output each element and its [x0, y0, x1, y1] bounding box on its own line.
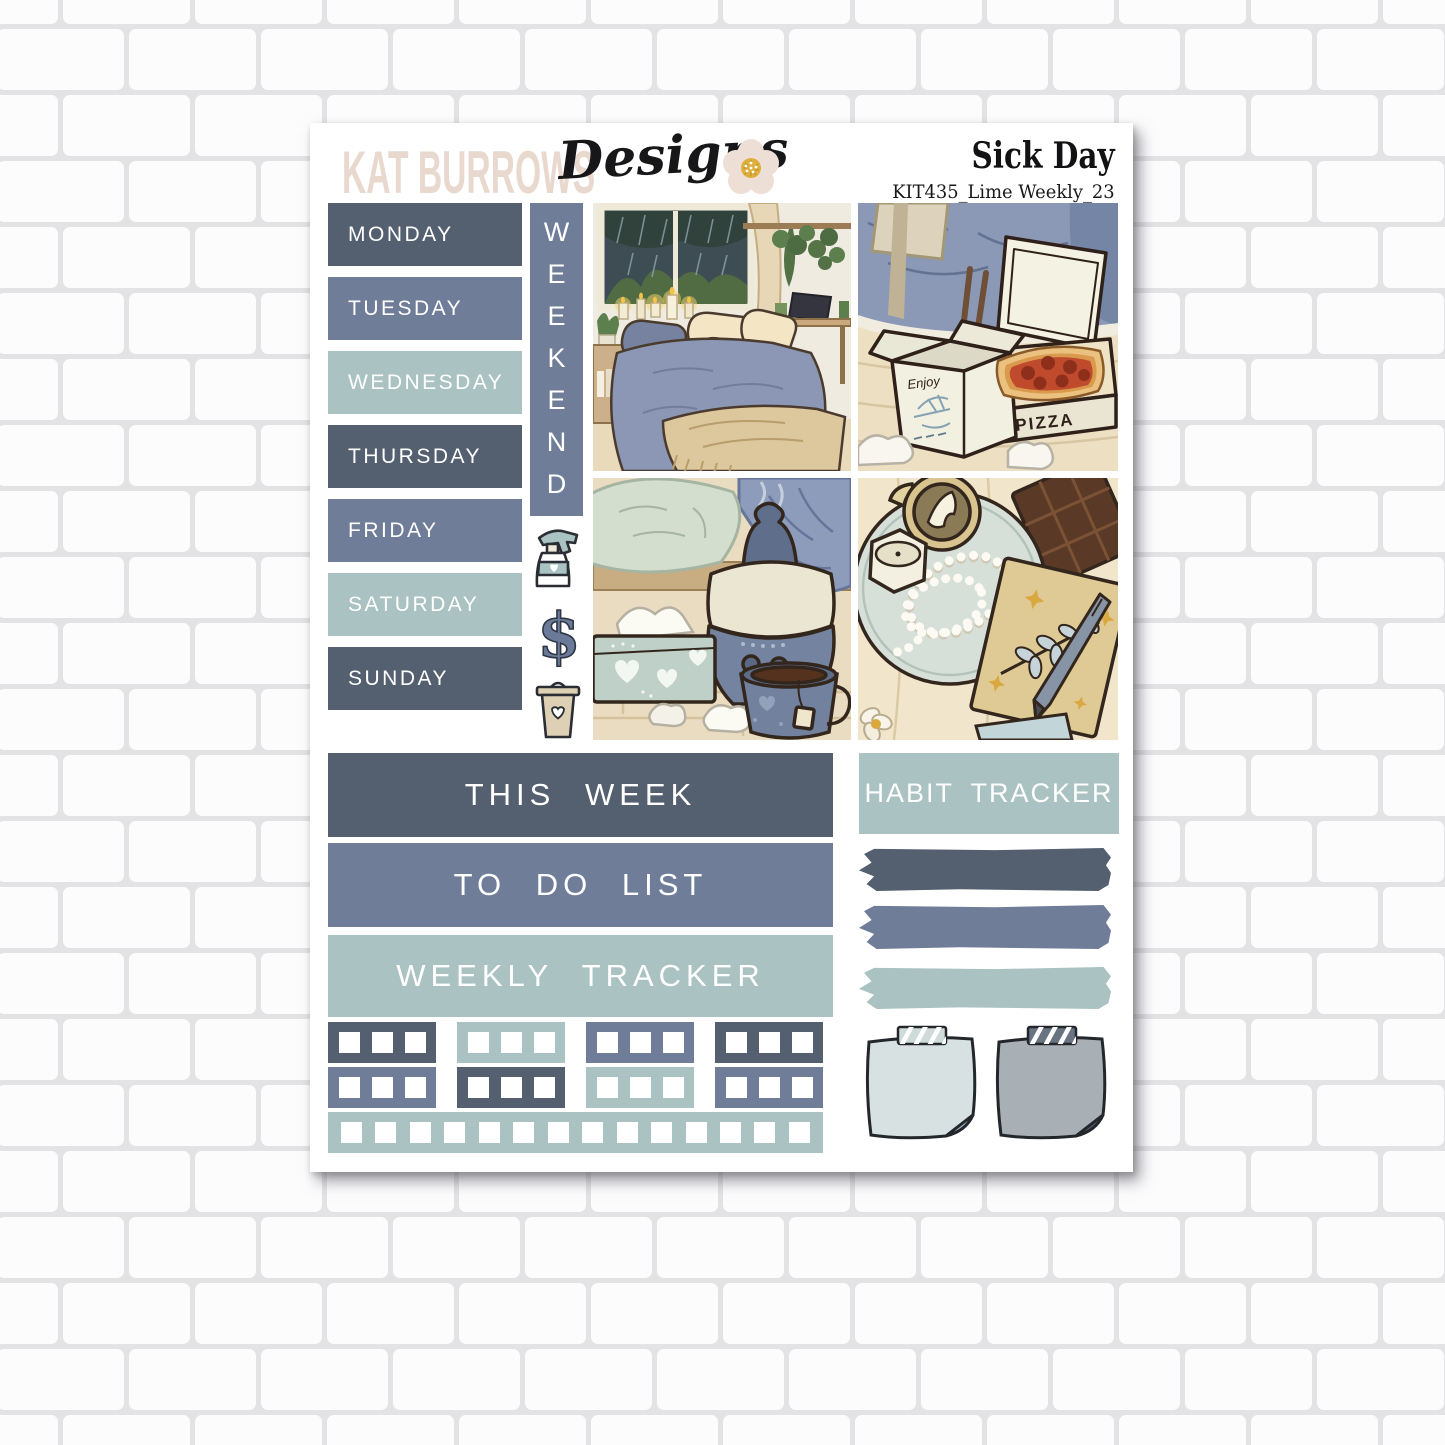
checkbox-strip: [328, 1112, 823, 1153]
checkbox-cell: [513, 1122, 534, 1143]
wall-tile: [327, 0, 454, 24]
day-sticker-saturday: SATURDAY: [328, 573, 522, 636]
wall-tile: [0, 1217, 124, 1278]
wall-tile: [195, 491, 322, 552]
wall-tile: [195, 1151, 322, 1212]
wall-tile: [0, 293, 124, 354]
checkbox-cell: [663, 1077, 684, 1098]
wall-tile: [525, 29, 652, 90]
wall-tile: [1119, 95, 1246, 156]
wall-tile: [1317, 557, 1444, 618]
wall-tile: [393, 29, 520, 90]
wall-tile: [195, 623, 322, 684]
wall-tile: [129, 293, 256, 354]
checkbox-row-2: [328, 1067, 823, 1108]
wall-tile: [789, 1217, 916, 1278]
wall-tile: [261, 29, 388, 90]
wall-tile: [129, 953, 256, 1014]
checkbox-cell: [617, 1122, 638, 1143]
wall-tile: [63, 887, 190, 948]
wall-tile: [0, 29, 124, 90]
wall-tile: [855, 0, 982, 24]
wall-tile: [195, 1415, 322, 1445]
wall-tile: [0, 755, 58, 816]
wall-tile: [129, 1217, 256, 1278]
wall-tile: [0, 1085, 124, 1146]
wall-tile: [0, 227, 58, 288]
checkbox-block: [586, 1022, 694, 1063]
tile-row: [0, 1415, 1445, 1445]
kit-title-block: Sick Day KIT435_Lime Weekly_23: [878, 135, 1115, 203]
wall-tile: [1383, 1151, 1445, 1212]
wall-tile: [0, 953, 124, 1014]
wall-tile: [63, 1283, 190, 1344]
wall-tile: [195, 359, 322, 420]
checkbox-cell: [339, 1032, 360, 1053]
wall-tile: [1317, 689, 1444, 750]
tile-row: [0, 1217, 1445, 1278]
wall-tile: [129, 689, 256, 750]
wall-tile: [195, 1019, 322, 1080]
checkbox-block: [586, 1067, 694, 1108]
wall-tile: [1119, 755, 1246, 816]
wall-tile: [1251, 1019, 1378, 1080]
brush-stroke-medium: [859, 905, 1111, 949]
wall-tile: [921, 1349, 1048, 1410]
wall-tile: [261, 1217, 388, 1278]
wall-tile: [1185, 29, 1312, 90]
wall-tile: [63, 227, 190, 288]
wall-tile: [1185, 1085, 1312, 1146]
wall-tile: [1119, 1415, 1246, 1445]
wall-tile: [63, 623, 190, 684]
wall-tile: [459, 1415, 586, 1445]
wall-tile: [1119, 1283, 1246, 1344]
checkbox-block: [457, 1022, 565, 1063]
checkbox-cell: [686, 1122, 707, 1143]
wall-tile: [129, 1349, 256, 1410]
illustration-humidifier: [593, 478, 851, 740]
brush-stroke-light: [859, 967, 1111, 1009]
checkbox-cell: [468, 1077, 489, 1098]
wall-tile: [195, 227, 322, 288]
checkbox-cell: [597, 1077, 618, 1098]
wall-tile: [723, 1283, 850, 1344]
checkbox-block: [715, 1067, 823, 1108]
day-sticker-friday: FRIDAY: [328, 499, 522, 562]
wall-tile: [129, 821, 256, 882]
wall-tile: [459, 0, 586, 24]
wall-tile: [1251, 1415, 1378, 1445]
wall-tile: [1317, 29, 1444, 90]
wall-tile: [195, 95, 322, 156]
wall-tile: [195, 0, 322, 24]
checkbox-cell: [534, 1077, 555, 1098]
dollar-sign-icon: $: [532, 601, 585, 676]
day-sticker-thursday: THURSDAY: [328, 425, 522, 488]
wall-tile: [1317, 425, 1444, 486]
checkbox-cell: [792, 1032, 813, 1053]
wall-tile: [195, 1283, 322, 1344]
wall-tile: [1119, 227, 1246, 288]
wall-tile: [1185, 425, 1312, 486]
spray-bottle-icon: [530, 526, 583, 595]
wall-tile: [1317, 953, 1444, 1014]
flower-icon: [722, 139, 780, 202]
wall-tile: [63, 0, 190, 24]
wall-tile: [657, 29, 784, 90]
checkbox-cell: [468, 1032, 489, 1053]
checkbox-cell: [410, 1122, 431, 1143]
wall-tile: [1053, 1217, 1180, 1278]
checkbox-block: [715, 1022, 823, 1063]
wall-tile: [1317, 1217, 1444, 1278]
wall-tile: [525, 1217, 652, 1278]
to-do-list-bar: TO DO LIST: [328, 843, 833, 927]
checkbox-cell: [372, 1032, 393, 1053]
wall-tile: [1383, 623, 1445, 684]
wall-tile: [0, 887, 58, 948]
wall-tile: [1119, 887, 1246, 948]
wall-tile: [1317, 821, 1444, 882]
sticky-note-gray: [990, 1025, 1112, 1145]
wall-tile: [0, 1019, 58, 1080]
wall-tile: [0, 689, 124, 750]
checkbox-cell: [597, 1032, 618, 1053]
wall-tile: [1119, 1019, 1246, 1080]
kit-title: Sick Day: [921, 135, 1115, 177]
wall-tile: [1383, 359, 1445, 420]
checkbox-cell: [405, 1032, 426, 1053]
illustration-flatlay: [858, 478, 1118, 740]
checkbox-cell: [651, 1122, 672, 1143]
wall-tile: [1119, 0, 1246, 24]
day-sticker-wednesday: WEDNESDAY: [328, 351, 522, 414]
wall-tile: [591, 1415, 718, 1445]
checkbox-cell: [720, 1122, 741, 1143]
wall-tile: [393, 1349, 520, 1410]
wall-tile: [1119, 359, 1246, 420]
wall-tile: [525, 1349, 652, 1410]
wall-tile: [129, 161, 256, 222]
wall-tile: [1251, 887, 1378, 948]
checkbox-cell: [663, 1032, 684, 1053]
wall-tile: [921, 29, 1048, 90]
wall-tile: [0, 425, 124, 486]
scene: KAT BURROWS Designs Sick Day KIT435_Lime…: [0, 0, 1445, 1445]
wall-tile: [1053, 1349, 1180, 1410]
wall-tile: [1185, 161, 1312, 222]
weekend-sticker: WEEKEND: [530, 203, 583, 516]
this-week-bar: THIS WEEK: [328, 753, 833, 837]
wall-tile: [987, 1283, 1114, 1344]
wall-tile: [0, 161, 124, 222]
wall-tile: [921, 1217, 1048, 1278]
wall-tile: [195, 887, 322, 948]
wall-tile: [1185, 293, 1312, 354]
checkbox-block: [328, 1067, 436, 1108]
wall-tile: [987, 0, 1114, 24]
tile-row: [0, 29, 1445, 90]
wall-tile: [1053, 29, 1180, 90]
wall-tile: [1317, 1349, 1444, 1410]
wall-tile: [129, 425, 256, 486]
checkbox-cell: [630, 1032, 651, 1053]
checkbox-cell: [501, 1077, 522, 1098]
wall-tile: [63, 1415, 190, 1445]
wall-tile: [1383, 491, 1445, 552]
checkbox-cell: [375, 1122, 396, 1143]
day-sticker-tuesday: TUESDAY: [328, 277, 522, 340]
wall-tile: [1383, 95, 1445, 156]
wall-tile: [723, 0, 850, 24]
wall-tile: [723, 1415, 850, 1445]
checkbox-cell: [789, 1122, 810, 1143]
wall-tile: [1185, 1217, 1312, 1278]
checkbox-cell: [759, 1077, 780, 1098]
wall-tile: [855, 1415, 982, 1445]
checkbox-cell: [341, 1122, 362, 1143]
wall-tile: [1251, 0, 1378, 24]
wall-tile: [129, 1085, 256, 1146]
checkbox-cell: [548, 1122, 569, 1143]
sticker-sheet: KAT BURROWS Designs Sick Day KIT435_Lime…: [310, 123, 1133, 1172]
wall-tile: [1383, 1019, 1445, 1080]
checkbox-cell: [792, 1077, 813, 1098]
wall-tile: [1383, 227, 1445, 288]
tile-row: [0, 0, 1445, 24]
wall-tile: [0, 359, 58, 420]
checkbox-cell: [754, 1122, 775, 1143]
wall-tile: [1251, 1151, 1378, 1212]
habit-tracker-bar: HABIT TRACKER: [859, 753, 1119, 834]
wall-tile: [0, 1415, 58, 1445]
wall-tile: [1185, 557, 1312, 618]
wall-tile: [1185, 953, 1312, 1014]
wall-tile: [1317, 161, 1444, 222]
wall-tile: [63, 755, 190, 816]
checkbox-cell: [444, 1122, 465, 1143]
wall-tile: [855, 1283, 982, 1344]
wall-tile: [1383, 1415, 1445, 1445]
wall-tile: [1383, 0, 1445, 24]
wall-tile: [1185, 1349, 1312, 1410]
wall-tile: [63, 491, 190, 552]
wall-tile: [789, 1349, 916, 1410]
checkbox-cell: [630, 1077, 651, 1098]
tile-row: [0, 1283, 1445, 1344]
wall-tile: [987, 1415, 1114, 1445]
wall-tile: [1185, 821, 1312, 882]
checkbox-cell: [534, 1032, 555, 1053]
wall-tile: [0, 557, 124, 618]
wall-tile: [657, 1349, 784, 1410]
illustration-bedroom: [593, 203, 851, 471]
day-sticker-monday: MONDAY: [328, 203, 522, 266]
brush-stroke-dark: [859, 848, 1111, 891]
wall-tile: [0, 1349, 124, 1410]
wall-tile: [591, 1283, 718, 1344]
wall-tile: [657, 1217, 784, 1278]
wall-tile: [0, 1151, 58, 1212]
wall-tile: [1251, 491, 1378, 552]
checkbox-block: [457, 1067, 565, 1108]
checkbox-cell: [372, 1077, 393, 1098]
checkbox-cell: [759, 1032, 780, 1053]
wall-tile: [1251, 755, 1378, 816]
wall-tile: [1251, 1283, 1378, 1344]
wall-tile: [591, 0, 718, 24]
checkbox-cell: [726, 1077, 747, 1098]
wall-tile: [1251, 623, 1378, 684]
wall-tile: [0, 821, 124, 882]
wall-tile: [0, 623, 58, 684]
wall-tile: [261, 1349, 388, 1410]
checkbox-cell: [726, 1032, 747, 1053]
wall-tile: [0, 491, 58, 552]
wall-tile: [0, 1283, 58, 1344]
wall-tile: [459, 1283, 586, 1344]
wall-tile: [63, 95, 190, 156]
wall-tile: [1317, 1085, 1444, 1146]
wall-tile: [0, 0, 58, 24]
checkbox-cell: [582, 1122, 603, 1143]
checkbox-row-1: [328, 1022, 823, 1063]
wall-tile: [0, 95, 58, 156]
wall-tile: [63, 1019, 190, 1080]
checkbox-cell: [339, 1077, 360, 1098]
wall-tile: [1383, 755, 1445, 816]
checkbox-cell: [479, 1122, 500, 1143]
wall-tile: [327, 1283, 454, 1344]
checkbox-cell: [405, 1077, 426, 1098]
wall-tile: [1119, 491, 1246, 552]
wall-tile: [63, 1151, 190, 1212]
tile-row: [0, 1349, 1445, 1410]
wall-tile: [393, 1217, 520, 1278]
wall-tile: [1185, 689, 1312, 750]
wall-tile: [1317, 293, 1444, 354]
wall-tile: [327, 1415, 454, 1445]
wall-tile: [63, 359, 190, 420]
checkbox-block: [328, 1022, 436, 1063]
wall-tile: [1383, 1283, 1445, 1344]
wall-tile: [1383, 887, 1445, 948]
svg-text:$: $: [537, 601, 580, 671]
wall-tile: [1119, 623, 1246, 684]
wall-tile: [789, 29, 916, 90]
wall-tile: [129, 557, 256, 618]
wall-tile: [1251, 227, 1378, 288]
trash-can-icon: [531, 679, 584, 744]
kit-code: KIT435_Lime Weekly_23: [893, 181, 1115, 203]
wall-tile: [1251, 95, 1378, 156]
wall-tile: [129, 29, 256, 90]
weekly-tracker-bar: WEEKLY TRACKER: [328, 935, 833, 1017]
day-sticker-sunday: SUNDAY: [328, 647, 522, 710]
sticky-note-pale-blue: [860, 1025, 982, 1145]
wall-tile: [1119, 1151, 1246, 1212]
wall-tile: [195, 755, 322, 816]
illustration-takeout-pizza: Enjoy PIZZA: [858, 203, 1118, 471]
checkbox-cell: [501, 1032, 522, 1053]
wall-tile: [1251, 359, 1378, 420]
